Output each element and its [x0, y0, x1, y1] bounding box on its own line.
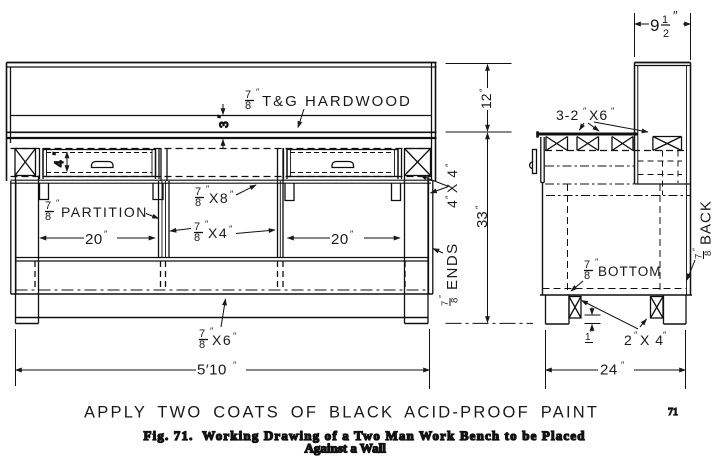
svg-text:8: 8 [703, 251, 714, 256]
svg-text:3-2: 3-2 [556, 107, 579, 123]
svg-text:71: 71 [668, 407, 678, 418]
svg-text:X4: X4 [208, 225, 228, 241]
svg-text:″: ″ [56, 198, 60, 208]
svg-text:X 4: X 4 [640, 332, 664, 348]
svg-text:″: ″ [233, 331, 237, 341]
svg-text:BACK: BACK [698, 200, 715, 245]
svg-text:″: ″ [611, 106, 615, 116]
svg-text:20: 20 [331, 231, 349, 248]
svg-text:BOTTOM: BOTTOM [598, 264, 662, 279]
svg-text:9: 9 [650, 16, 659, 35]
svg-text:″: ″ [52, 152, 61, 155]
svg-text:″: ″ [583, 106, 587, 116]
svg-text:20: 20 [85, 231, 103, 248]
svg-text:2: 2 [624, 332, 633, 348]
svg-text:″: ″ [663, 330, 667, 340]
svg-text:″: ″ [673, 8, 678, 23]
svg-text:ENDS: ENDS [444, 242, 461, 290]
svg-text:8: 8 [194, 232, 200, 244]
svg-text:″: ″ [444, 195, 454, 199]
svg-text:Against a Wall: Against a Wall [305, 441, 387, 456]
svg-text:12: 12 [478, 93, 494, 109]
svg-text:8: 8 [45, 211, 51, 223]
svg-text:8: 8 [195, 197, 201, 209]
svg-text:″: ″ [230, 189, 234, 199]
svg-text:5′10: 5′10 [197, 362, 227, 379]
svg-text:″: ″ [444, 163, 454, 167]
svg-text:24: 24 [600, 362, 618, 379]
svg-text:″: ″ [256, 87, 260, 97]
svg-text:X6: X6 [589, 107, 608, 123]
svg-text:T&G HARDWOOD: T&G HARDWOOD [262, 93, 412, 110]
svg-text:″: ″ [590, 329, 593, 338]
svg-text:2: 2 [663, 28, 669, 40]
svg-text:8: 8 [584, 270, 590, 282]
svg-text:4: 4 [52, 160, 66, 167]
svg-text:″: ″ [634, 330, 638, 340]
svg-text:8: 8 [450, 298, 461, 303]
svg-text:X 4: X 4 [444, 169, 460, 193]
svg-text:33: 33 [474, 211, 491, 228]
svg-text:4: 4 [444, 199, 460, 208]
svg-text:X6: X6 [212, 332, 232, 348]
svg-text:″: ″ [217, 115, 226, 118]
svg-text:8: 8 [199, 339, 205, 351]
svg-text:8: 8 [245, 100, 251, 112]
svg-text:X8: X8 [209, 190, 229, 206]
svg-text:PARTITION: PARTITION [61, 204, 148, 220]
svg-text:″: ″ [692, 248, 701, 251]
svg-text:APPLY TWO COATS OF BLACK ACID-: APPLY TWO COATS OF BLACK ACID-PROOF PAIN… [84, 404, 598, 422]
svg-text:3: 3 [217, 121, 231, 128]
svg-text:″: ″ [229, 224, 233, 234]
svg-text:″: ″ [438, 295, 447, 298]
svg-text:1: 1 [662, 14, 668, 26]
